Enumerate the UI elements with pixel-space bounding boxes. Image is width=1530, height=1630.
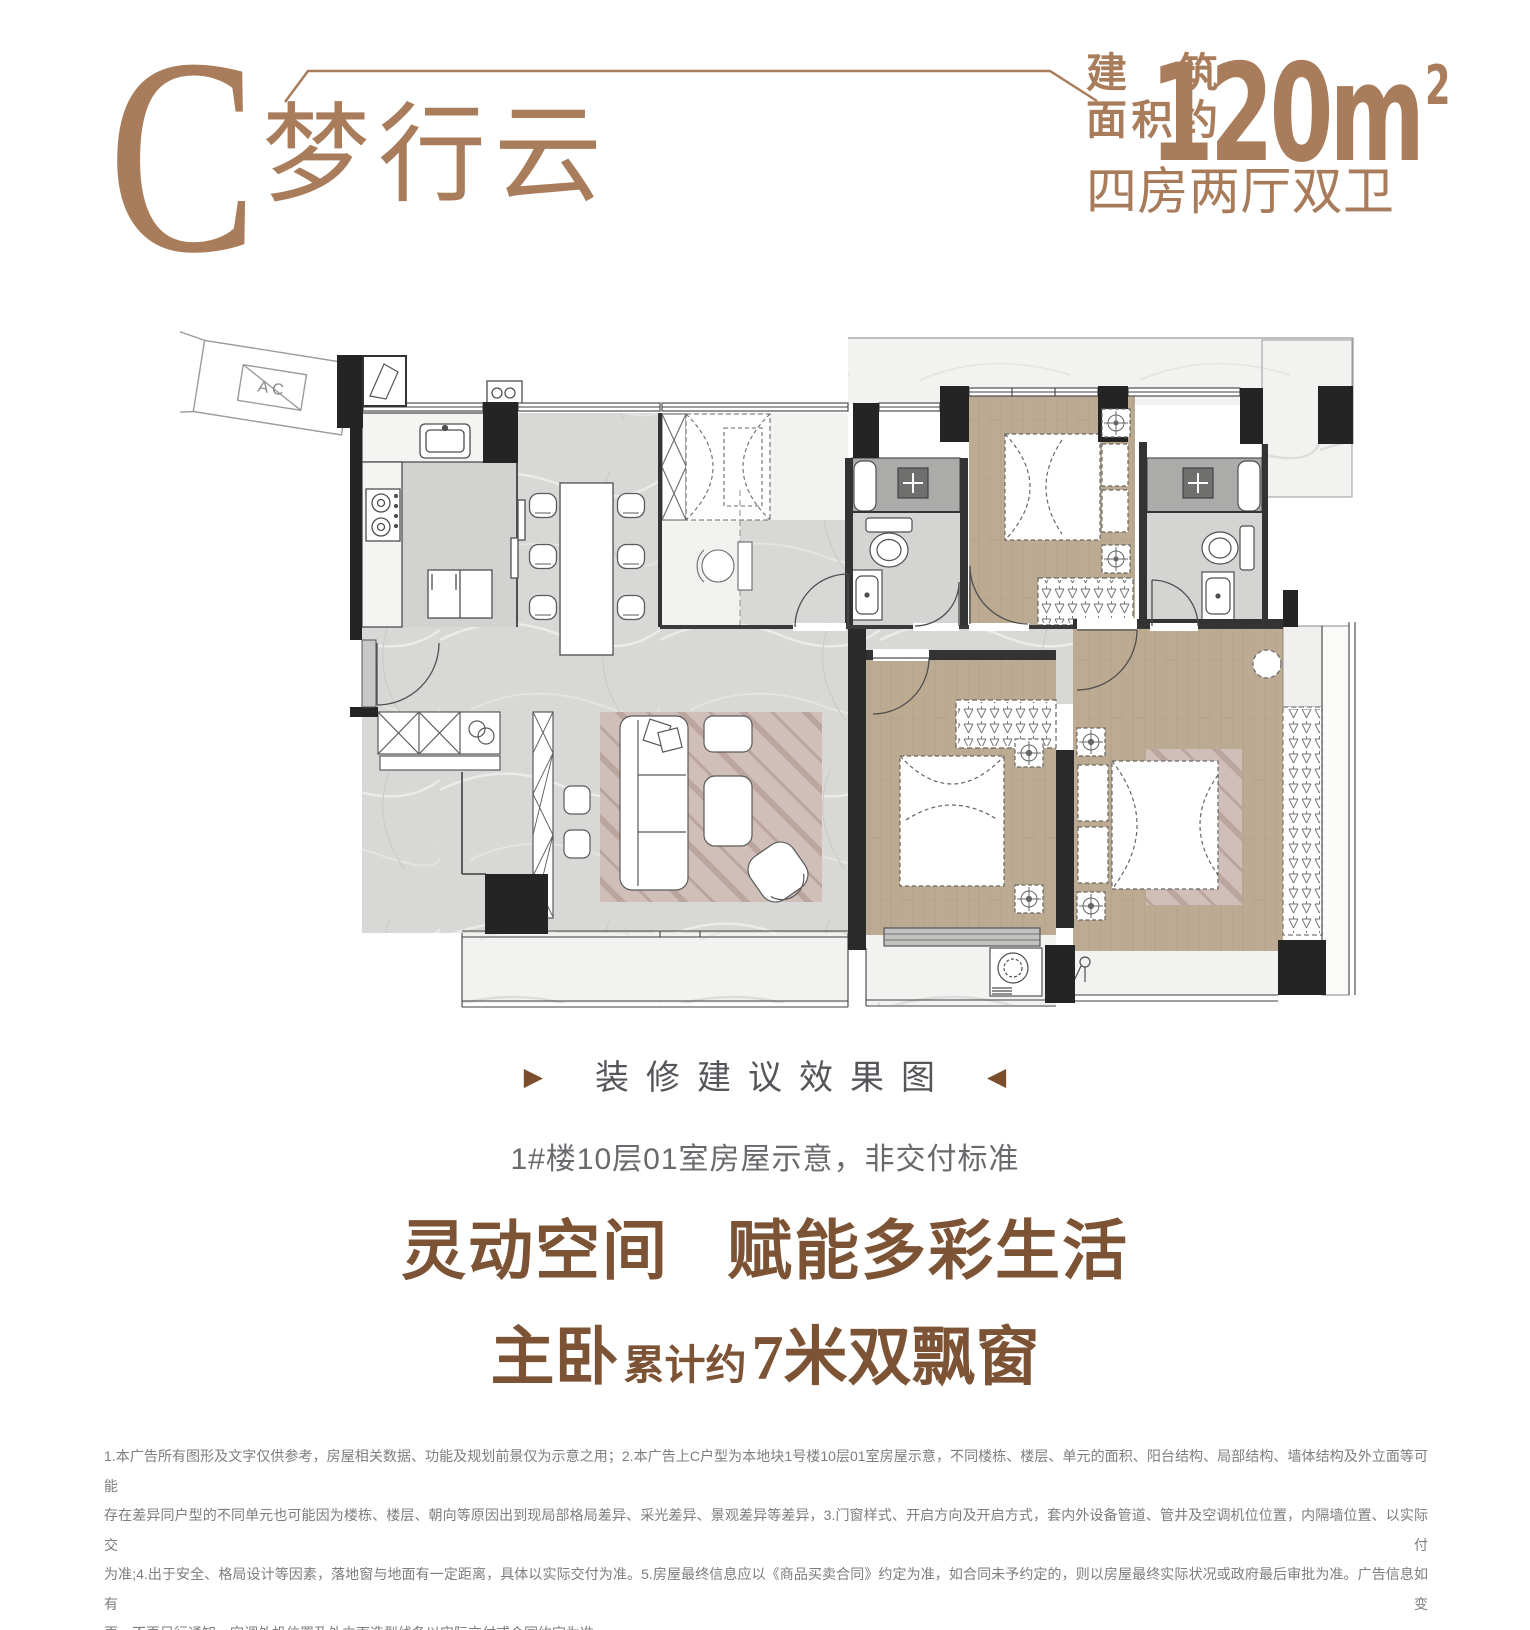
dining-chair — [530, 494, 557, 518]
washbasin-icon — [1238, 461, 1260, 511]
ac-unit-icon — [1015, 885, 1043, 913]
bay-wardrobe — [1283, 707, 1322, 935]
ac-platform: A C — [180, 326, 354, 443]
shaft-box — [363, 356, 406, 406]
side-table-icon — [564, 786, 590, 814]
disclaimer-line: 存在差异同户型的不同单元也可能因为楼栋、楼层、朝向等原因出到现局部格局差异、采光… — [104, 1501, 1428, 1560]
ac-unit-icon — [1077, 892, 1105, 920]
disclaimer-line: 1.本广告所有图形及文字仅供参考，房屋相关数据、功能及规划前景仅为示意之用；2.… — [104, 1442, 1428, 1501]
ac-unit-icon — [1077, 728, 1105, 756]
slogan2-small: 累计约 — [624, 1342, 747, 1388]
disclaimer-line: 为准;4.出于安全、格局设计等因素，落地窗与地面有一定距离，具体以实际交付为准。… — [104, 1560, 1428, 1619]
low-window-sill — [884, 928, 1040, 946]
ac-unit-icon — [1015, 739, 1043, 767]
disclaimer-line: 更，不再另行通知。空调外机位置及外立面造型线条以实际交付或合同约定为准。 — [104, 1619, 1428, 1630]
stove-icon — [366, 489, 400, 541]
render-caption-text: 装修建议效果图 — [595, 1060, 952, 1097]
washing-machine-icon — [990, 948, 1042, 996]
dining-chair — [618, 494, 645, 518]
fridge-icon — [428, 570, 492, 618]
shower-drain-icon — [898, 468, 928, 498]
render-caption: ▶装修建议效果图◀ — [0, 1050, 1530, 1099]
dining-chair — [618, 596, 645, 620]
coffee-table — [704, 716, 752, 752]
coffee-table — [704, 776, 752, 846]
shower-drain-icon — [1183, 468, 1213, 498]
area-superscript: 2 — [1425, 54, 1451, 117]
floor-plan: A C — [180, 290, 1410, 1030]
slogan1-right: 赋能多彩生活 — [727, 1216, 1129, 1288]
shoe-cabinet — [378, 712, 500, 770]
left-triangle-icon: ◀ — [987, 1063, 1006, 1091]
slogan1-left: 灵动空间 — [401, 1216, 669, 1288]
dining-chair — [618, 545, 645, 569]
floorplan-poster: C 梦行云 建筑 面积约 120m2 四房两厅双卫 — [0, 0, 1530, 1630]
slogan-line2: 主卧累计约7米双飘窗 — [0, 1306, 1530, 1398]
disclaimer: 1.本广告所有图形及文字仅供参考，房屋相关数据、功能及规划前景仅为示意之用；2.… — [104, 1442, 1428, 1630]
slogan2-prefix: 主卧 — [491, 1322, 619, 1393]
slogan2-suffix: 7米双飘窗 — [752, 1322, 1040, 1393]
bed — [900, 756, 1004, 886]
washbasin-icon — [854, 461, 876, 511]
side-table-icon — [1253, 650, 1281, 678]
dining-table — [560, 483, 613, 655]
kitchen-sink-icon — [420, 424, 470, 458]
ac-unit-icon — [1102, 545, 1130, 573]
dining-chair — [530, 545, 557, 569]
desk — [738, 542, 752, 590]
vanity-sink-icon — [852, 570, 882, 620]
daybed — [686, 414, 770, 520]
slogan-line1: 灵动空间赋能多彩生活 — [0, 1198, 1530, 1292]
wardrobe — [1038, 578, 1133, 625]
ac-platform-label: A C — [257, 378, 285, 399]
vanity-sink-icon — [1202, 572, 1234, 620]
unit-note: 1#楼10层01室房屋示意，非交付标准 — [0, 1134, 1530, 1178]
dining-chair — [530, 596, 557, 620]
toilet-icon — [866, 518, 912, 567]
right-triangle-icon: ▶ — [524, 1063, 543, 1091]
ac-unit-icon — [1102, 409, 1130, 437]
sofa — [620, 716, 688, 890]
side-table-icon — [564, 830, 590, 858]
layout-text: 四房两厅双卫 — [1086, 150, 1394, 224]
